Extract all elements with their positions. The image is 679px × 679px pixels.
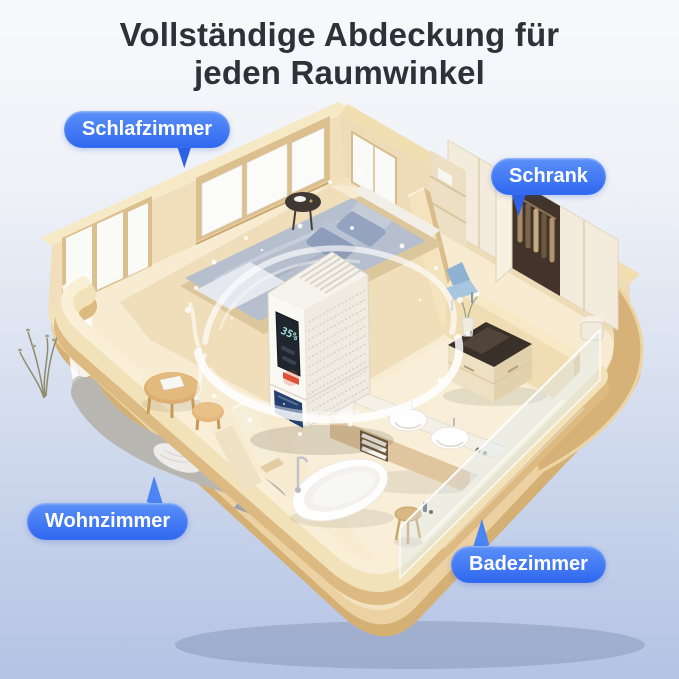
callout-schlafzimmer-label: Schlafzimmer: [82, 118, 212, 140]
callout-badezimmer-label: Badezimmer: [469, 553, 588, 575]
page-title: Vollständige Abdeckung für jeden Raumwin…: [0, 16, 679, 93]
title-line-1: Vollständige Abdeckung für: [0, 16, 679, 54]
device-display-panel: [276, 312, 300, 376]
title-line-2: jeden Raumwinkel: [0, 54, 679, 92]
callout-badezimmer: Badezimmer: [451, 546, 606, 583]
callout-wohnzimmer-label: Wohnzimmer: [45, 510, 170, 532]
callout-schlafzimmer: Schlafzimmer: [64, 111, 230, 148]
product-infographic: 35% Vollständige Abdeckung für: [0, 0, 679, 679]
callout-schrank-label: Schrank: [509, 165, 588, 187]
callout-wohnzimmer: Wohnzimmer: [27, 503, 188, 540]
ground-shadow: [175, 621, 645, 669]
callout-schrank: Schrank: [491, 158, 606, 195]
